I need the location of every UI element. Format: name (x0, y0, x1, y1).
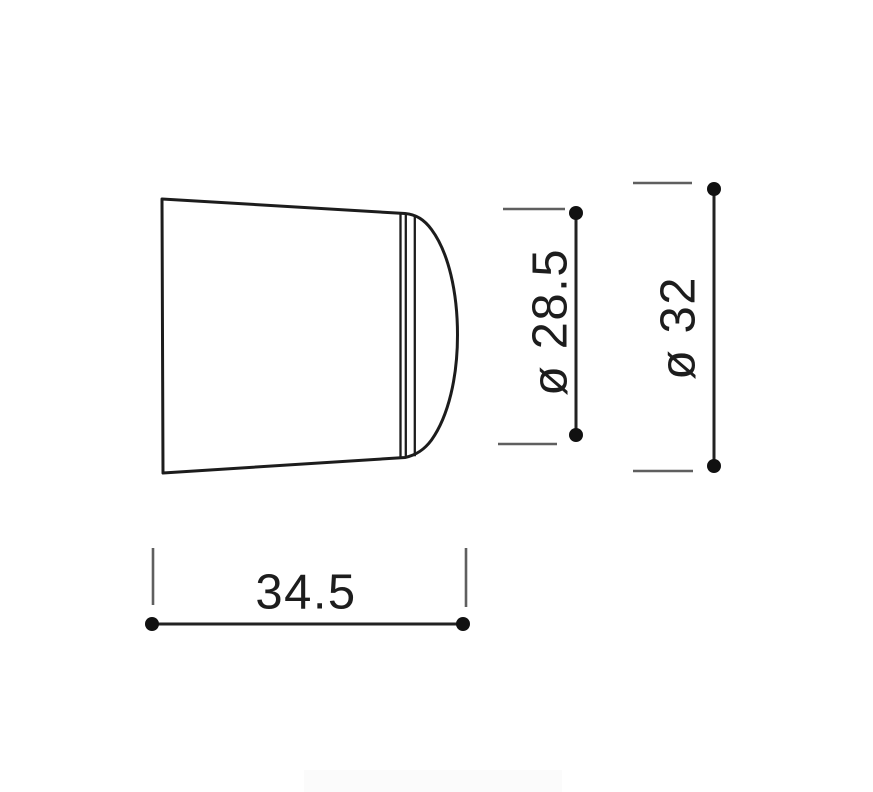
head-diameter-dimension-label: ø 28.5 (527, 248, 576, 396)
part-outline (162, 199, 458, 473)
dimension-endpoint-dot (145, 617, 159, 631)
dimension-endpoint-dot (569, 206, 583, 220)
drawing-canvas: 34.5 ø 28.5 ø 32 (0, 0, 873, 792)
watermark-band (304, 770, 562, 792)
width-dimension-label: 34.5 (255, 569, 356, 618)
base-diameter-dimension-label: ø 32 (655, 276, 704, 380)
technical-drawing-svg (0, 0, 873, 792)
dimension-endpoint-dot (569, 428, 583, 442)
dimension-endpoint-dot (456, 617, 470, 631)
dimension-endpoint-dot (707, 182, 721, 196)
dimension-endpoint-dot (707, 459, 721, 473)
